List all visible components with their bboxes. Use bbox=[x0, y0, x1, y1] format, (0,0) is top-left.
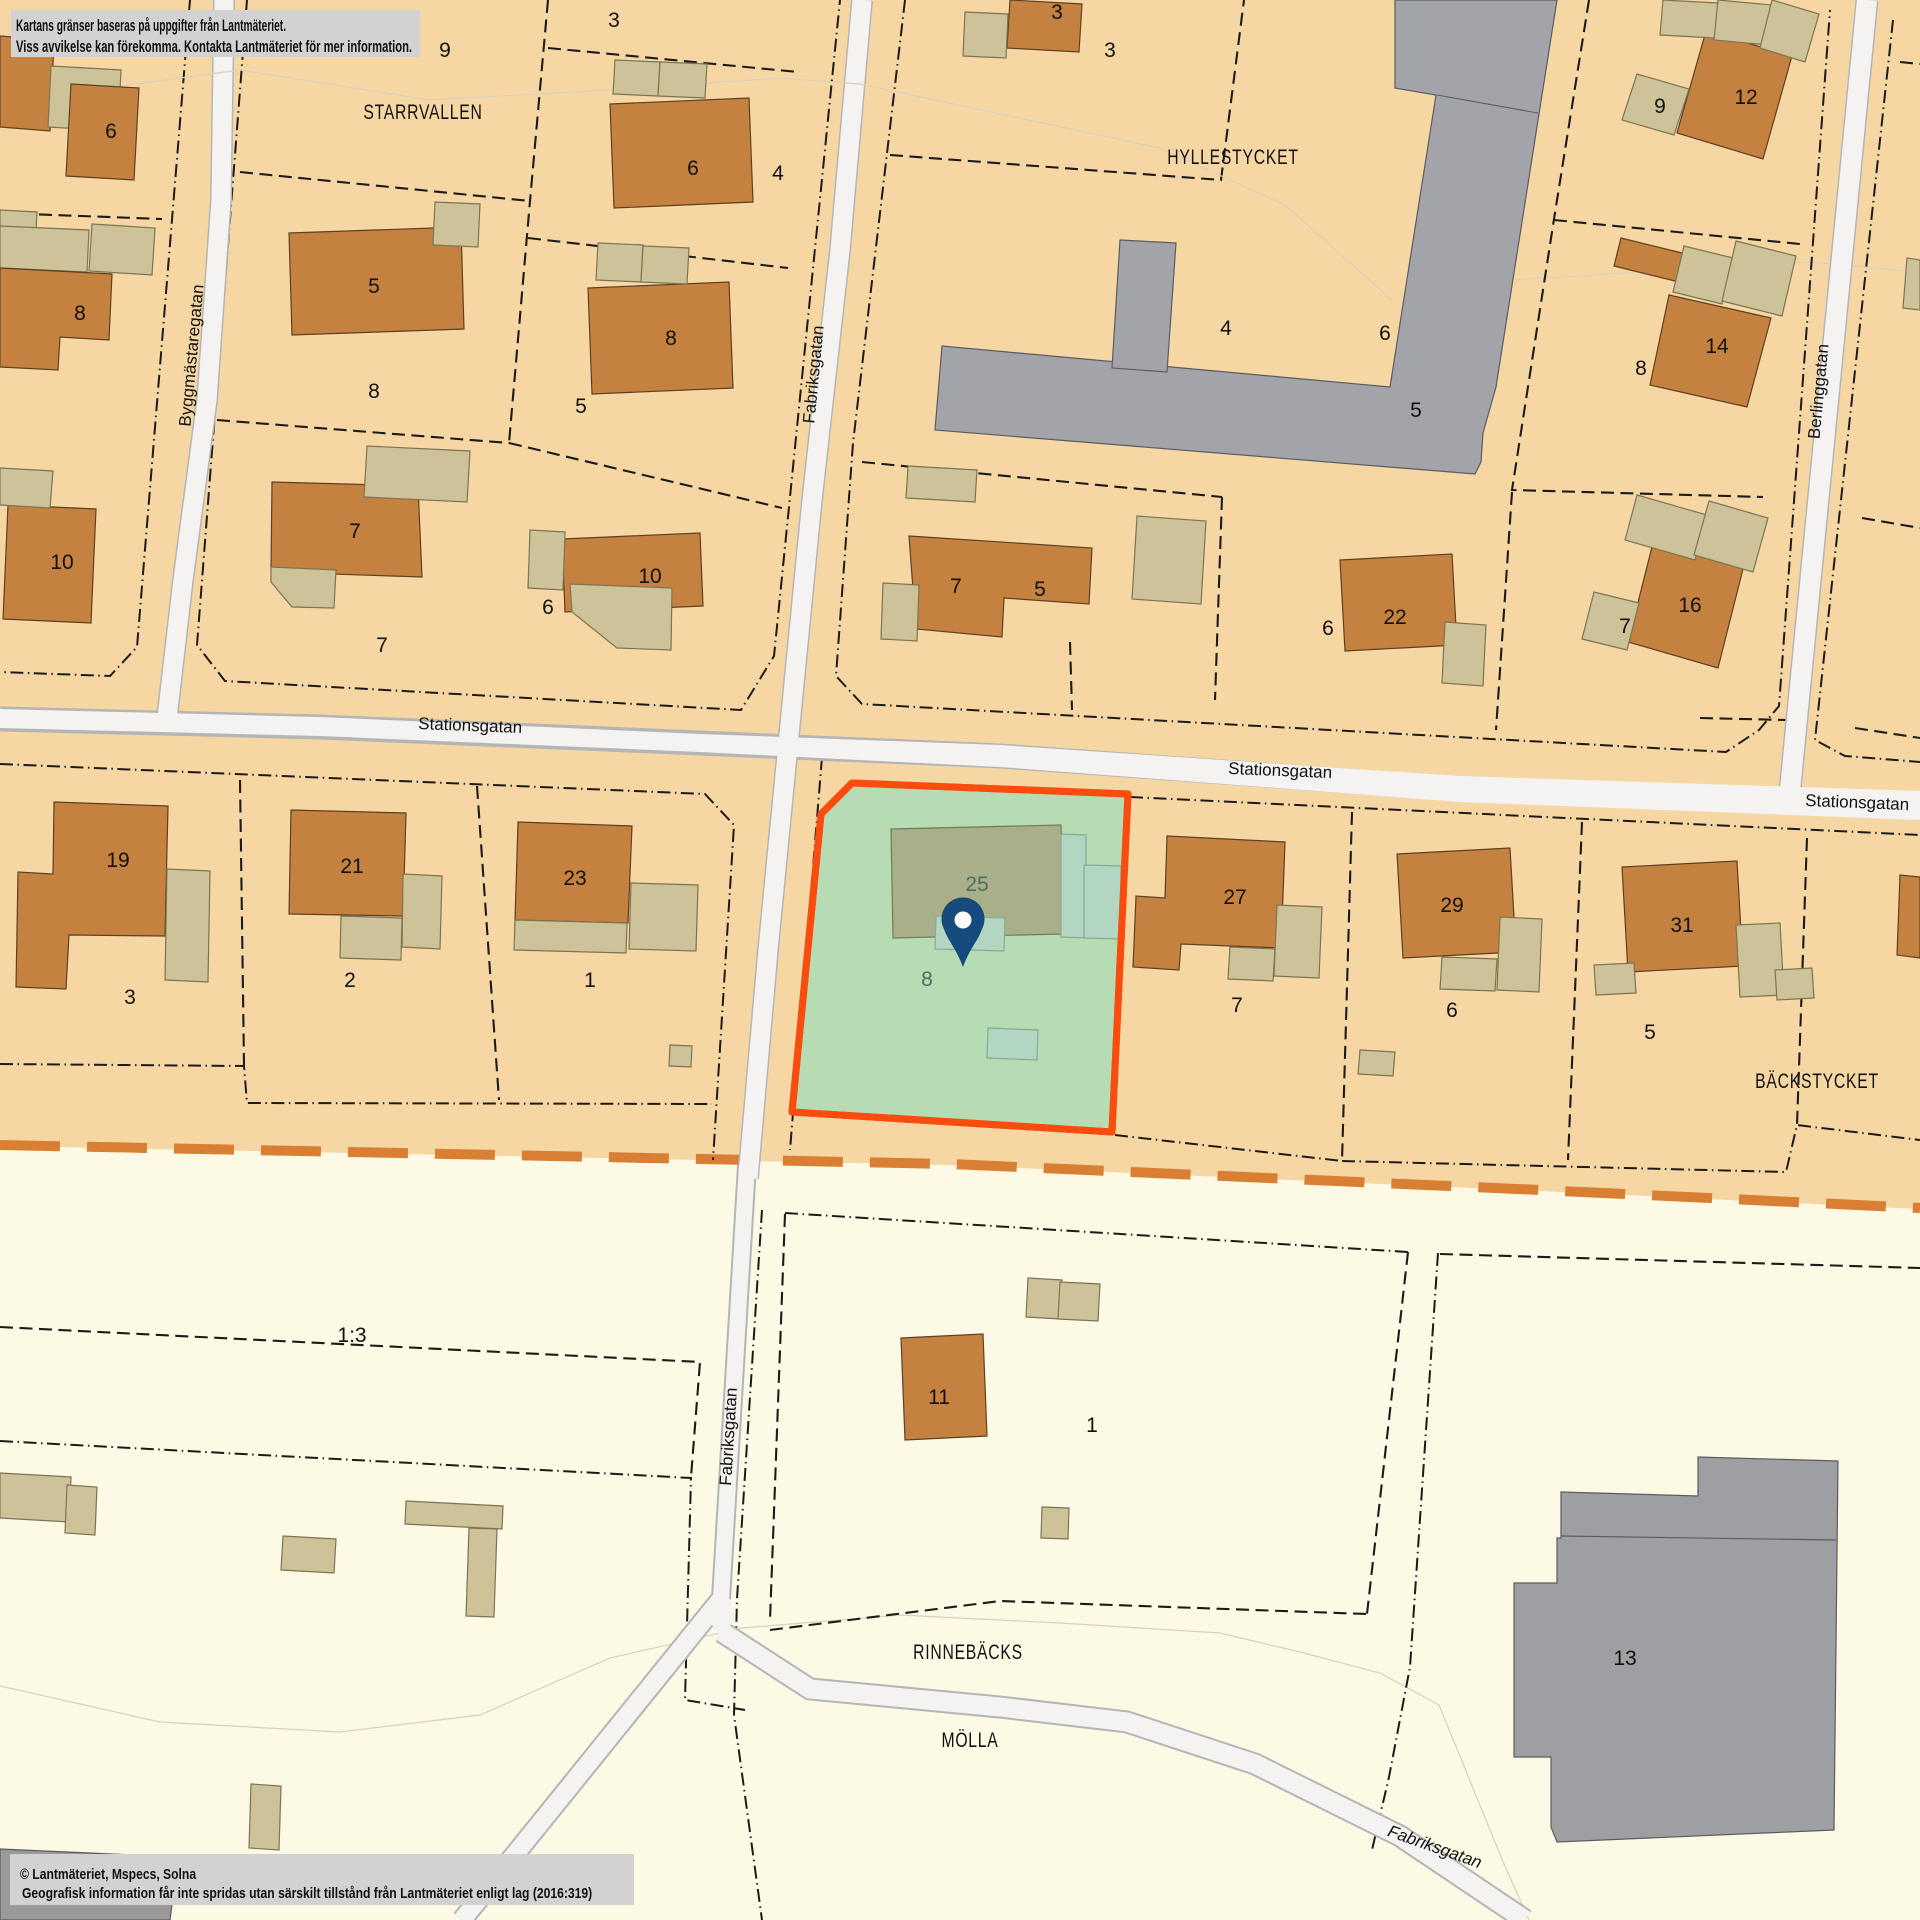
svg-text:9: 9 bbox=[1654, 95, 1666, 118]
svg-text:8: 8 bbox=[1635, 357, 1647, 380]
svg-text:Geografisk information får int: Geografisk information får inte spridas … bbox=[22, 1885, 592, 1901]
svg-text:31: 31 bbox=[1670, 914, 1693, 937]
svg-text:22: 22 bbox=[1383, 606, 1406, 629]
svg-text:21: 21 bbox=[340, 855, 363, 878]
svg-text:RINNEBÄCKS: RINNEBÄCKS bbox=[913, 1640, 1023, 1664]
svg-text:14: 14 bbox=[1705, 335, 1729, 358]
svg-text:7: 7 bbox=[1619, 615, 1631, 638]
svg-text:12: 12 bbox=[1734, 86, 1757, 109]
svg-text:Kartans gränser baseras på upp: Kartans gränser baseras på uppgifter frå… bbox=[16, 15, 286, 34]
svg-text:STARRVALLEN: STARRVALLEN bbox=[363, 100, 482, 124]
svg-text:19: 19 bbox=[106, 849, 129, 872]
svg-text:7: 7 bbox=[1231, 994, 1243, 1017]
svg-text:11: 11 bbox=[928, 1386, 950, 1409]
svg-text:1: 1 bbox=[584, 969, 596, 992]
svg-text:MÖLLA: MÖLLA bbox=[941, 1728, 998, 1752]
svg-text:HYLLESTYCKET: HYLLESTYCKET bbox=[1167, 145, 1298, 169]
svg-text:7: 7 bbox=[349, 520, 361, 543]
svg-text:7: 7 bbox=[950, 575, 962, 598]
svg-text:8: 8 bbox=[665, 327, 677, 350]
svg-text:1: 1 bbox=[1086, 1414, 1098, 1437]
svg-text:6: 6 bbox=[1322, 617, 1334, 640]
svg-text:5: 5 bbox=[368, 275, 380, 298]
svg-text:3: 3 bbox=[124, 986, 136, 1009]
svg-text:1:3: 1:3 bbox=[337, 1324, 366, 1347]
svg-text:8: 8 bbox=[368, 380, 380, 403]
svg-text:4: 4 bbox=[772, 162, 784, 185]
svg-text:5: 5 bbox=[575, 395, 587, 418]
svg-text:3: 3 bbox=[1051, 1, 1063, 24]
svg-text:4: 4 bbox=[1220, 317, 1232, 340]
svg-text:9: 9 bbox=[439, 39, 451, 62]
svg-text:23: 23 bbox=[563, 867, 586, 890]
svg-text:8: 8 bbox=[921, 968, 933, 991]
svg-text:13: 13 bbox=[1613, 1647, 1636, 1670]
svg-text:© Lantmäteriet, Mspecs, Solna: © Lantmäteriet, Mspecs, Solna bbox=[20, 1866, 196, 1882]
svg-text:6: 6 bbox=[1446, 999, 1458, 1022]
svg-text:5: 5 bbox=[1644, 1021, 1656, 1044]
svg-text:5: 5 bbox=[1034, 578, 1046, 601]
svg-text:Viss avvikelse kan förekomma.: Viss avvikelse kan förekomma. Kontakta L… bbox=[16, 38, 412, 57]
svg-text:6: 6 bbox=[105, 120, 117, 143]
svg-text:6: 6 bbox=[687, 157, 699, 180]
svg-text:10: 10 bbox=[638, 565, 661, 588]
svg-text:27: 27 bbox=[1223, 886, 1246, 909]
svg-text:6: 6 bbox=[542, 596, 554, 619]
svg-text:3: 3 bbox=[1104, 39, 1116, 62]
svg-text:29: 29 bbox=[1440, 894, 1463, 917]
svg-text:3: 3 bbox=[608, 9, 620, 32]
svg-text:10: 10 bbox=[50, 551, 73, 574]
svg-text:BÄCKSTYCKET: BÄCKSTYCKET bbox=[1755, 1069, 1879, 1093]
svg-text:8: 8 bbox=[74, 302, 86, 325]
svg-text:5: 5 bbox=[1410, 399, 1422, 422]
svg-text:2: 2 bbox=[344, 969, 356, 992]
svg-text:6: 6 bbox=[1379, 322, 1391, 345]
svg-text:25: 25 bbox=[965, 873, 988, 896]
svg-text:Stationsgatan: Stationsgatan bbox=[418, 714, 523, 737]
svg-text:16: 16 bbox=[1678, 594, 1701, 617]
svg-text:7: 7 bbox=[376, 634, 388, 657]
